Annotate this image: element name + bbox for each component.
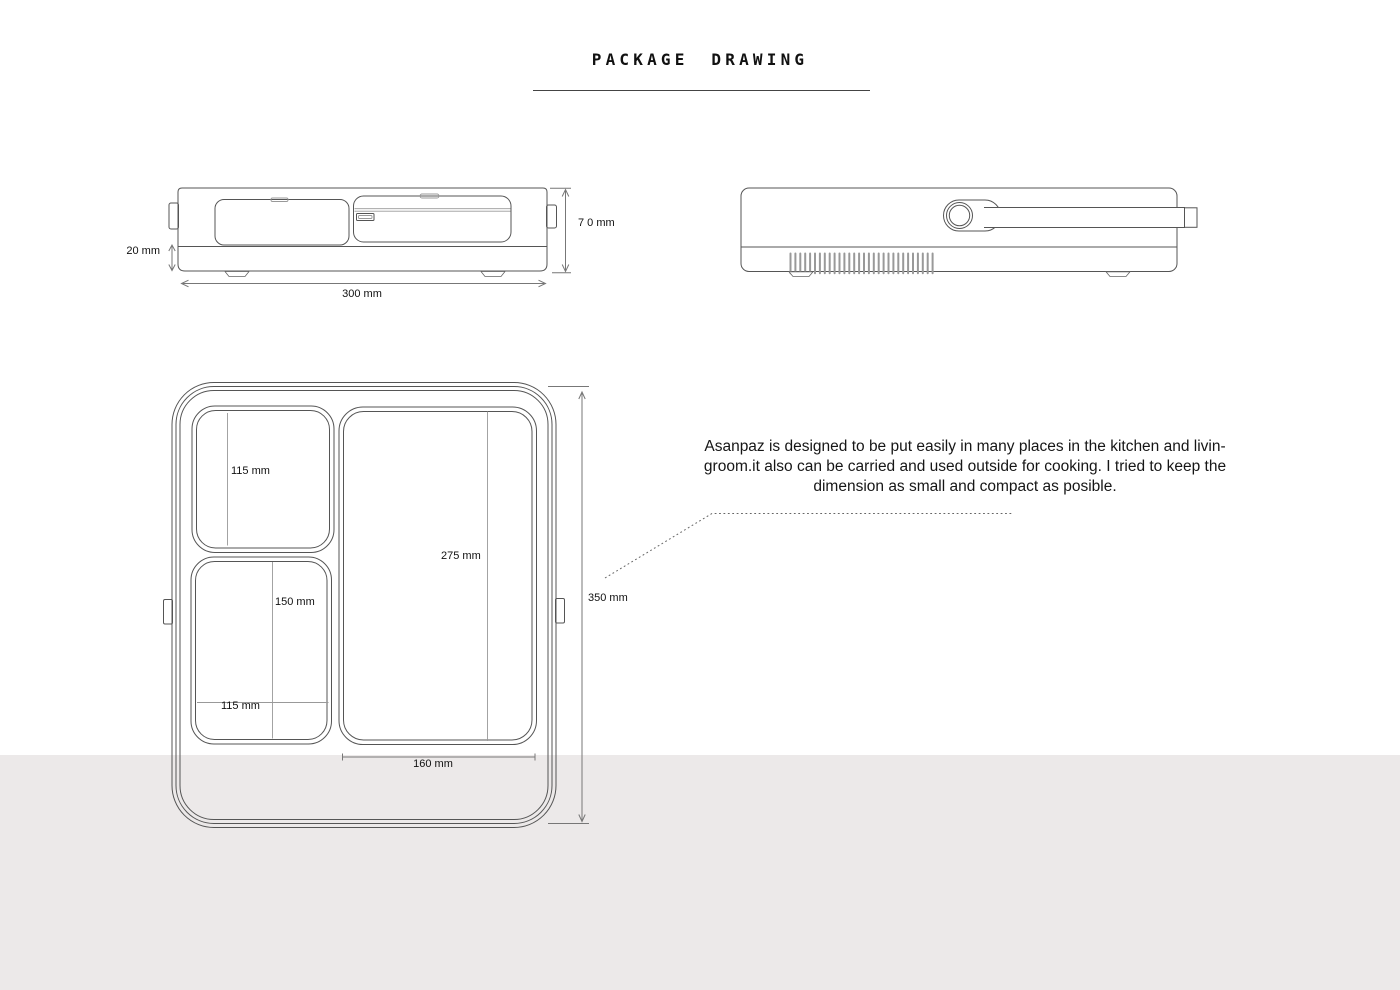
small-compartment-outer — [192, 406, 334, 553]
dim-label-front-width: 300 mm — [322, 288, 402, 300]
front-height-dimension-arrow — [550, 188, 571, 272]
top-right-hinge-tab — [556, 599, 565, 624]
dim-label-overall-height: 350 mm — [588, 592, 628, 604]
annotation-line-3: dimension as small and compact as posibl… — [685, 477, 1245, 497]
main-compartment-inner — [344, 412, 533, 741]
side-foot-left — [789, 272, 813, 277]
small-compartment-inner — [197, 411, 330, 549]
side-body-outline — [741, 188, 1177, 272]
dim-label-front-height: 7 0 mm — [578, 217, 615, 229]
front-foot-left — [225, 272, 249, 277]
handle-ring-outer — [947, 203, 973, 229]
front-width-dimension-arrow — [182, 280, 546, 287]
front-view-drawing — [169, 188, 571, 287]
overall-height-dimension-arrow — [548, 387, 589, 824]
top-left-hinge-tab — [164, 600, 173, 625]
dim-label-small-compartment-height: 115 mm — [231, 465, 270, 477]
dim-label-lower-compartment-width: 115 mm — [221, 700, 260, 712]
annotation-leader-line — [605, 514, 1013, 579]
handle-ring-inner — [949, 205, 969, 225]
dim-label-lower-compartment-height: 150 mm — [275, 596, 315, 608]
top-body-outline-outer — [172, 383, 556, 828]
package-drawing-page: PACKAGE DRAWING — [0, 0, 1400, 990]
side-foot-right — [1106, 272, 1130, 277]
lower-compartment-inner — [196, 562, 328, 740]
front-foot-right — [481, 272, 505, 277]
dim-label-main-compartment-width: 160 mm — [393, 758, 473, 770]
dim-label-main-compartment-height: 275 mm — [441, 550, 481, 562]
side-handle — [944, 200, 1198, 231]
front-latch-button — [357, 214, 375, 221]
front-right-panel — [354, 196, 512, 242]
front-left-panel — [215, 200, 349, 246]
side-vent-slats — [791, 253, 933, 273]
front-left-tab — [169, 203, 179, 229]
handle-end-cap — [1185, 208, 1198, 228]
lower-compartment-outer — [191, 557, 332, 744]
front-base-dimension-arrow — [169, 245, 175, 271]
annotation-line-1: Asanpaz is designed to be put easily in … — [685, 437, 1245, 457]
side-view-drawing — [741, 188, 1197, 277]
front-right-tab — [547, 205, 557, 228]
top-body-outline-mid — [176, 387, 552, 824]
dim-label-front-base-height: 20 mm — [110, 245, 160, 257]
handle-bar-fill — [984, 208, 1184, 228]
main-compartment-outer — [339, 407, 537, 745]
top-body-outline-inner — [180, 391, 548, 820]
annotation-line-2: groom.it also can be carried and used ou… — [685, 457, 1245, 477]
front-latch-button-inner — [359, 216, 373, 219]
annotation-paragraph: Asanpaz is designed to be put easily in … — [685, 437, 1245, 497]
front-body-outline — [178, 188, 547, 271]
